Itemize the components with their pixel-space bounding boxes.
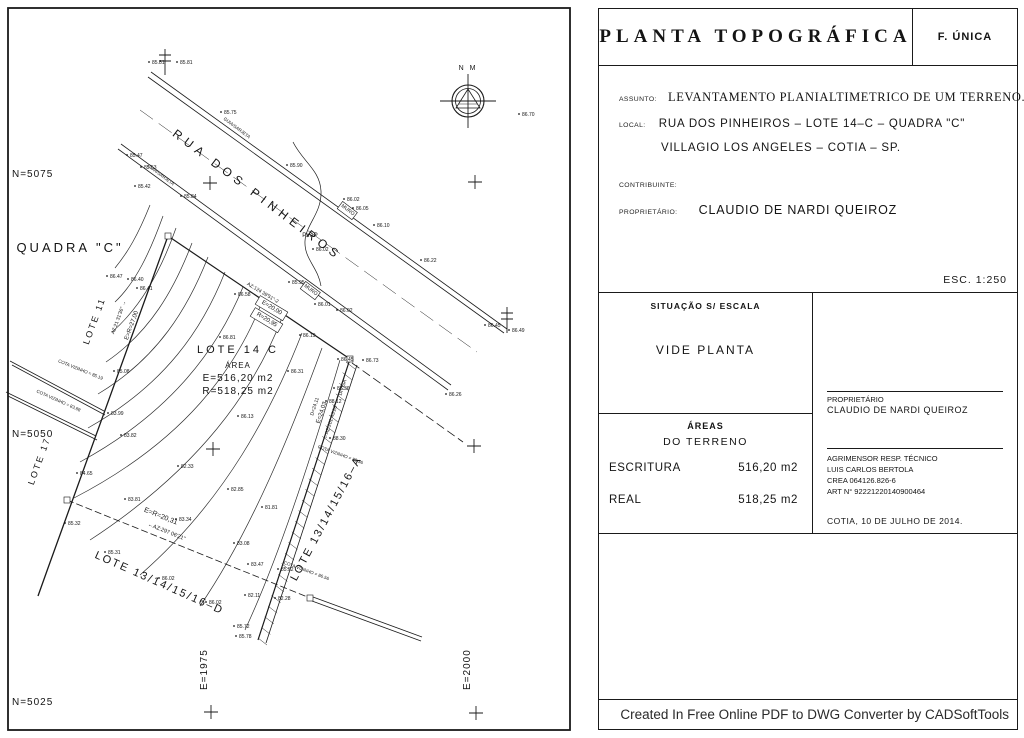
map-label: LOTE 14 C: [197, 344, 279, 356]
spot-elevation: 86.73: [366, 358, 379, 364]
hatch-tick: [292, 532, 301, 539]
hatch-tick: [275, 585, 284, 592]
map-label-group: R=518,25 m2: [202, 386, 273, 397]
spot-elevation: 86.13: [241, 414, 254, 420]
spot-elevation: 84.65: [80, 471, 93, 477]
spot-elevation: 85.78: [239, 634, 252, 640]
situacao-box: SITUAÇÃO S/ ESCALA VIDE PLANTA: [599, 293, 812, 414]
map-label-group: COTA VIZINHO = 83.88: [36, 389, 82, 413]
sheet-title: PLANTA TOPOGRÁFICA: [599, 9, 912, 65]
local-value-1: RUA DOS PINHEIROS – LOTE 14–C – QUADRA "…: [659, 118, 965, 130]
spot-point: [420, 259, 422, 261]
spot-point: [113, 370, 115, 372]
spot-elevation: 86.47: [110, 274, 123, 280]
map-label-group: LOTE 13/14/15/16–A: [288, 454, 364, 583]
map-label-group: ←AZ:297 06'21": [147, 522, 186, 543]
areas-box: ÁREAS DO TERRENO ESCRITURA 516,20 m2 REA…: [599, 414, 812, 506]
spot-point: [244, 594, 246, 596]
map-label: GUIA/SARJETA: [223, 116, 252, 139]
spot-point: [107, 412, 109, 414]
spot-point: [180, 195, 182, 197]
spot-point: [233, 625, 235, 627]
plan-line: [313, 597, 422, 637]
map-label-group: GUIA/SARJETA: [147, 163, 176, 186]
spot-point: [274, 597, 276, 599]
map-label-group: E=2000: [462, 649, 473, 690]
map-label: N M: [459, 65, 478, 72]
spot-point: [314, 303, 316, 305]
situacao-areas-column: SITUAÇÃO S/ ESCALA VIDE PLANTA ÁREAS DO …: [599, 293, 813, 533]
owner-sign-name: CLAUDIO DE NARDI QUEIROZ: [827, 405, 968, 415]
plan-sheet: 85.8185.8185.7585.9086.0286.0586.1086.22…: [0, 0, 1024, 738]
spot-elevation: 86.49: [512, 328, 525, 334]
spot-elevation: 85.42: [138, 184, 151, 190]
spot-point: [445, 393, 447, 395]
map-label-group: MURO: [300, 281, 320, 299]
map-label: COTA VIZINHO = 83.88: [36, 389, 82, 413]
spot-point: [287, 370, 289, 372]
real-row: REAL 518,25 m2: [599, 494, 812, 506]
map-label-group: COTA VIZINHO = 88.36: [317, 444, 364, 465]
hatch-tick: [265, 617, 274, 624]
spot-point: [261, 506, 263, 508]
proprietario-line: PROPRIETÁRIO: CLAUDIO DE NARDI QUEIROZ: [619, 203, 897, 217]
spot-point: [106, 275, 108, 277]
grid-cross-icon: [204, 705, 218, 719]
spot-point: [124, 498, 126, 500]
spot-point: [484, 324, 486, 326]
spot-point: [329, 437, 331, 439]
spot-elevation: 83.81: [128, 497, 141, 503]
spot-elevation: 88.30: [333, 436, 346, 442]
map-label-group: AZ:21 31'36" →: [110, 300, 128, 335]
map-label-group: E=1975: [199, 649, 210, 690]
surveyor-name: LUIS CARLOS BERTOLA: [827, 464, 938, 475]
real-label: REAL: [609, 494, 641, 506]
map-label: R=518,25 m2: [202, 386, 273, 397]
spot-point: [362, 359, 364, 361]
spot-point: [333, 387, 335, 389]
map-label: E=516,20 m2: [203, 373, 274, 384]
map-label-group: QUADRA "C": [16, 240, 123, 255]
map-label: ÁREA: [225, 361, 251, 370]
map-label: AZ:21 31'36" →: [110, 300, 128, 335]
spot-elevation: 82.11: [248, 593, 260, 599]
spot-point: [288, 281, 290, 283]
spot-point: [237, 415, 239, 417]
boundary-marker: [165, 233, 171, 239]
map-label: COTA VIZINHO = 88.36: [317, 444, 364, 465]
map-label: LOTE 13/14/15/16–D: [93, 549, 226, 617]
spot-elevation: 86.81: [223, 335, 236, 341]
owner-sign-label: PROPRIETÁRIO: [827, 395, 884, 404]
spot-elevation: 85.81: [180, 60, 193, 66]
map-label-group: COTA VIZINHO = 85.19: [57, 358, 104, 381]
contribuinte-line: CONTRIBUINTE:: [619, 178, 677, 190]
spot-point: [234, 293, 236, 295]
situacao-body: VIDE PLANTA: [599, 343, 812, 357]
hatch-tick: [261, 627, 270, 634]
spot-elevation: 85.08: [117, 369, 130, 375]
spot-point: [177, 465, 179, 467]
date-line: COTIA, 10 DE JULHO DE 2014.: [827, 516, 963, 526]
signatures-column: PROPRIETÁRIO CLAUDIO DE NARDI QUEIROZ AG…: [813, 293, 1017, 533]
hatch-tick: [285, 553, 294, 560]
map-label-group: N M: [459, 65, 478, 72]
escritura-row: ESCRITURA 516,20 m2: [599, 462, 812, 474]
spot-point: [134, 185, 136, 187]
spot-point: [235, 635, 237, 637]
converter-footer: Created In Free Online PDF to DWG Conver…: [599, 699, 1017, 729]
spot-elevation: 86.02: [347, 197, 360, 203]
map-label-group: LOTE 11: [81, 296, 107, 346]
grid-cross-icon: [206, 442, 220, 456]
drawing-frame: [8, 8, 570, 730]
assunto-line: ASSUNTO: LEVANTAMENTO PLANIALTIMETRICO D…: [619, 90, 1024, 105]
map-label-group: LOTE 17: [26, 436, 53, 486]
map-label: LOTE 11: [81, 296, 107, 346]
spot-elevation: 85.81: [152, 60, 165, 66]
hatch-tick: [258, 638, 267, 645]
map-label: N=5075: [12, 169, 53, 180]
spot-point: [337, 358, 339, 360]
spot-elevation: 82.85: [231, 487, 244, 493]
spot-elevation: 86.10: [377, 223, 390, 229]
plan-line: [148, 77, 504, 333]
grid-cross-icon: [469, 706, 483, 720]
spot-point: [220, 111, 222, 113]
surveyor-block: AGRIMENSOR RESP. TÉCNICO LUIS CARLOS BER…: [827, 453, 938, 497]
spot-point: [299, 334, 301, 336]
map-label-group: LOTE 13/14/15/16–D: [93, 549, 226, 617]
spot-elevation: 86.45: [341, 357, 354, 363]
spot-point: [508, 329, 510, 331]
map-label: LOTE 17: [26, 436, 53, 486]
map-label-group: PVAP: [302, 233, 318, 239]
hatch-tick: [288, 542, 297, 549]
spot-point: [286, 164, 288, 166]
spot-point: [64, 522, 66, 524]
spot-elevation: 81.81: [265, 505, 278, 511]
spot-elevation: 86.26: [449, 392, 462, 398]
plan-line: [151, 72, 507, 329]
empty-section: [599, 534, 1017, 699]
middle-section: SITUAÇÃO S/ ESCALA VIDE PLANTA ÁREAS DO …: [599, 293, 1017, 534]
spot-point: [127, 278, 129, 280]
spot-point: [233, 542, 235, 544]
map-label-group: ÁREA: [225, 361, 251, 370]
map-label-group: LOTE 14 C: [197, 344, 279, 356]
contour-line: [115, 205, 150, 268]
spot-elevation: 85.90: [290, 163, 303, 169]
spot-point: [247, 563, 249, 565]
local-label: LOCAL:: [619, 122, 646, 129]
spot-point: [126, 154, 128, 156]
spot-elevation: 83.82: [124, 433, 137, 439]
spot-point: [312, 248, 314, 250]
map-label-group: E=516,20 m2: [203, 373, 274, 384]
spot-elevation: 85.84: [184, 194, 197, 200]
escritura-label: ESCRITURA: [609, 462, 681, 474]
boundary-marker: [307, 595, 313, 601]
grid-cross-icon: [468, 175, 482, 189]
spot-elevation: 82.28: [278, 596, 291, 602]
title-block-header: PLANTA TOPOGRÁFICA F. ÚNICA: [599, 9, 1017, 66]
surveyor-art: ART N° 92221220140900464: [827, 486, 938, 497]
spot-elevation: 86.40: [131, 277, 144, 283]
title-block: PLANTA TOPOGRÁFICA F. ÚNICA ASSUNTO: LEV…: [598, 8, 1018, 730]
hatch-tick: [295, 521, 304, 528]
surveyor-crea: CREA 064126.826-6: [827, 475, 938, 486]
scale-note: ESC. 1:250: [943, 274, 1007, 286]
assunto-label: ASSUNTO:: [619, 96, 657, 103]
spot-elevation: 83.47: [251, 562, 264, 568]
spot-elevation: 85.72: [237, 624, 250, 630]
spot-elevation: 86.41: [140, 286, 153, 292]
spot-elevation: 85.47: [130, 153, 143, 159]
map-label-group: GUIA/SARJETA: [223, 116, 252, 139]
spot-elevation: 86.70: [522, 112, 535, 118]
spot-point: [148, 61, 150, 63]
spot-elevation: 83.34: [179, 517, 192, 523]
map-label: COTA VIZINHO = 85.19: [57, 358, 104, 381]
hatch-tick: [278, 574, 287, 581]
surveyor-title: AGRIMENSOR RESP. TÉCNICO: [827, 453, 938, 464]
spot-elevation: 83.08: [237, 541, 250, 547]
spot-point: [518, 113, 520, 115]
contour-line: [106, 243, 192, 362]
spot-elevation: 85.32: [68, 521, 81, 527]
spot-point: [219, 336, 221, 338]
areas-subheader: DO TERRENO: [599, 436, 812, 448]
plan-line: [118, 149, 448, 390]
spot-elevation: 82.33: [181, 464, 194, 470]
situacao-header: SITUAÇÃO S/ ESCALA: [599, 293, 812, 311]
surveyor-signature-line: [827, 448, 1003, 449]
map-label-group: N=5025: [12, 697, 53, 708]
grid-cross-icon: [467, 439, 481, 453]
boundary-dashed-line: [67, 500, 310, 598]
spot-point: [343, 198, 345, 200]
map-label-group: N=5050: [12, 429, 53, 440]
spot-point: [136, 287, 138, 289]
map-label: E=1975: [199, 649, 210, 690]
plan-line: [10, 361, 104, 411]
sheet-number: F. ÚNICA: [912, 9, 1017, 65]
spot-point: [227, 488, 229, 490]
spot-elevation: 85.75: [224, 110, 237, 116]
grid-cross-icon: [203, 176, 217, 190]
spot-elevation: 86.02: [340, 308, 353, 314]
local-line-2: VILLAGIO LOS ANGELES – COTIA – SP.: [661, 142, 901, 154]
real-value: 518,25 m2: [738, 494, 798, 506]
spot-elevation: 86.05: [356, 206, 369, 212]
spot-point: [277, 568, 279, 570]
spot-point: [140, 166, 142, 168]
local-value-2: VILLAGIO LOS ANGELES – COTIA – SP.: [661, 142, 901, 154]
map-label: ←AZ:297 06'21": [147, 522, 186, 543]
map-label-group: MURO: [337, 201, 357, 219]
areas-header: ÁREAS: [599, 414, 812, 431]
spot-elevation: 86.01: [318, 302, 331, 308]
north-compass-icon: [440, 74, 496, 128]
map-label: LOTE 13/14/15/16–A: [288, 454, 364, 583]
spot-elevation: 83.99: [111, 411, 124, 417]
proprietario-label: PROPRIETÁRIO:: [619, 209, 677, 216]
project-info-section: ASSUNTO: LEVANTAMENTO PLANIALTIMETRICO D…: [599, 66, 1017, 293]
hatch-tick: [299, 511, 308, 518]
boundary-marker: [64, 497, 70, 503]
proprietario-value: CLAUDIO DE NARDI QUEIROZ: [699, 203, 897, 217]
map-label: GUIA/SARJETA: [147, 163, 176, 186]
map-label: QUADRA "C": [16, 240, 123, 255]
spot-point: [325, 400, 327, 402]
spot-point: [120, 434, 122, 436]
spot-point: [373, 224, 375, 226]
owner-signature-line: [827, 391, 1003, 392]
spot-elevation: 86.31: [291, 369, 304, 375]
spot-point: [176, 61, 178, 63]
escritura-value: 516,20 m2: [738, 462, 798, 474]
spot-elevation: 86.22: [424, 258, 437, 264]
spot-point: [336, 309, 338, 311]
boundary-dashed-line: [352, 363, 463, 442]
map-label: N=5050: [12, 429, 53, 440]
contribuinte-label: CONTRIBUINTE:: [619, 182, 677, 189]
map-label: E=2000: [462, 649, 473, 690]
spot-elevation: 86.45: [488, 323, 501, 329]
map-label-group: N=5075: [12, 169, 53, 180]
hatch-tick: [268, 606, 277, 613]
map-label: N=5025: [12, 697, 53, 708]
plan-line: [312, 601, 421, 641]
assunto-value: LEVANTAMENTO PLANIALTIMETRICO DE UM TERR…: [668, 90, 1024, 104]
spot-point: [76, 472, 78, 474]
local-line: LOCAL: RUA DOS PINHEIROS – LOTE 14–C – Q…: [619, 118, 965, 130]
spot-elevation: 86.19: [303, 333, 316, 339]
spot-elevation: 86.58: [238, 292, 251, 298]
map-label: PVAP: [302, 233, 318, 239]
hatch-tick: [302, 500, 311, 507]
